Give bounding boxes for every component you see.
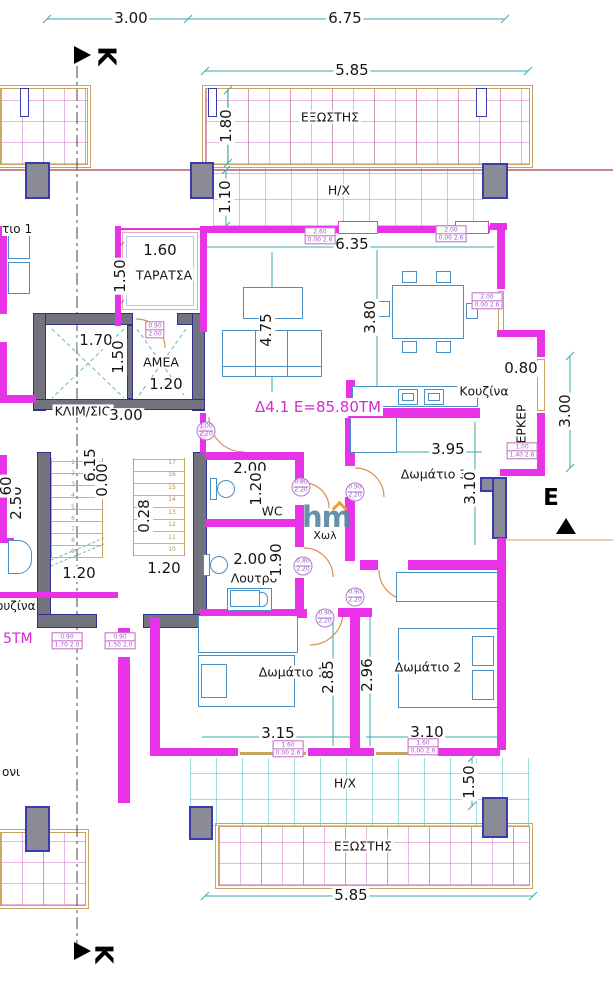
wall bbox=[205, 519, 304, 527]
wall bbox=[497, 223, 505, 289]
dimension: 2.96 bbox=[360, 656, 376, 693]
room-label-room3: Δωμάτιο 3 bbox=[399, 467, 470, 480]
room-label-klimsio: ΚΛΙΜ/ΣΙΟ bbox=[53, 404, 114, 417]
dimension: 1.50 bbox=[111, 338, 127, 375]
stair-step-numbers: 1716 1514 1312 1110 bbox=[166, 459, 178, 553]
dimension: 1.80 bbox=[219, 107, 235, 144]
dimension: 1.20 bbox=[60, 566, 97, 582]
wall bbox=[37, 614, 97, 628]
door-tag: 0.902.20 bbox=[346, 483, 365, 502]
chair bbox=[402, 341, 417, 353]
window bbox=[338, 221, 378, 234]
dimension: 6.35 bbox=[333, 237, 370, 253]
dimension: 1.10 bbox=[218, 178, 234, 215]
door-tag: 0.802.20 bbox=[292, 478, 311, 497]
dimension-fragment: 60 bbox=[0, 474, 15, 497]
door-tag: 0.902.20 bbox=[316, 609, 335, 628]
adjacent-furniture bbox=[8, 233, 30, 259]
room-label-room1: Δωμάτιο 1 bbox=[257, 665, 328, 678]
dimension: 1.50 bbox=[113, 257, 129, 294]
dimension: 0.80 bbox=[502, 361, 539, 377]
door-tag: 0.902.20 bbox=[346, 588, 365, 607]
wall bbox=[0, 226, 7, 314]
kitchen-sink bbox=[398, 389, 418, 405]
door-tag: 0.802.20 bbox=[294, 557, 313, 576]
window-tag: 0.902.00 bbox=[145, 321, 164, 338]
stair-step-numbers: 12 34 56 78 9 bbox=[68, 459, 78, 555]
window-tag: 2.000.00 2.6 bbox=[436, 225, 467, 242]
window-jamb bbox=[476, 88, 487, 117]
section-marker-top: Κ bbox=[93, 46, 122, 65]
dimension: 1.20 bbox=[249, 470, 265, 507]
wall bbox=[500, 469, 542, 476]
room-label-taratsa: ΤΑΡΑΤΣΑ bbox=[134, 268, 194, 281]
toilet-bowl bbox=[217, 480, 235, 498]
column bbox=[482, 797, 508, 838]
window-jamb bbox=[208, 88, 217, 117]
pillow bbox=[472, 636, 494, 666]
kitchen-sink bbox=[424, 389, 444, 405]
window-tag: 1.600.00 2.6 bbox=[408, 738, 439, 755]
room-label-kouzina: Κουζίνα bbox=[457, 384, 510, 397]
column bbox=[25, 162, 50, 199]
window-tag: 2.000.00 2.6 bbox=[472, 292, 503, 309]
dimension: 4.75 bbox=[259, 311, 275, 348]
apartment-label: Δ4.1 Ε=85.80ΤΜ bbox=[253, 398, 383, 416]
chair bbox=[436, 341, 451, 353]
dimension: 3.10 bbox=[463, 469, 479, 506]
wall bbox=[0, 342, 7, 400]
chair bbox=[436, 271, 451, 283]
dimension: 6.75 bbox=[326, 11, 363, 27]
wall bbox=[37, 452, 51, 628]
section-arrow-icon bbox=[556, 518, 576, 534]
wall bbox=[150, 617, 160, 750]
wardrobe bbox=[396, 572, 498, 602]
adjacent-balcony-label-fragment: ονι bbox=[2, 765, 20, 779]
window-tag: 2.600.00 2.6 bbox=[305, 227, 336, 244]
wall bbox=[308, 748, 374, 756]
column bbox=[482, 163, 508, 199]
wall bbox=[438, 748, 500, 756]
wall bbox=[537, 413, 545, 476]
room-label-exostis-bottom: ΕΞΩΣΤΗΣ bbox=[332, 839, 394, 852]
wall bbox=[127, 325, 133, 399]
toilet-bowl bbox=[210, 556, 228, 574]
wall bbox=[408, 560, 500, 570]
adjacent-kitchen-label-fragment: ουζίνα bbox=[0, 599, 36, 613]
dimension: 3.95 bbox=[429, 442, 466, 458]
dimension: 1.60 bbox=[141, 243, 178, 259]
room-label-amea: ΑΜΕΑ bbox=[141, 355, 181, 368]
wall bbox=[338, 608, 372, 617]
wall bbox=[193, 452, 207, 628]
window-tag: 0.901.50 2.0 bbox=[105, 632, 136, 649]
window-tag: 1.600.00 2.6 bbox=[273, 740, 304, 757]
room-label-hx-top: Η/Χ bbox=[326, 183, 352, 196]
section-arrow-icon bbox=[74, 46, 91, 64]
dimension: 5.85 bbox=[332, 888, 369, 904]
wall bbox=[537, 330, 545, 357]
column bbox=[189, 806, 213, 840]
adjacent-furniture bbox=[8, 262, 30, 294]
wall bbox=[118, 657, 130, 803]
dimension: 0.00 bbox=[95, 461, 111, 498]
dimension: 1.90 bbox=[269, 541, 285, 578]
dimension: 5.85 bbox=[333, 63, 370, 79]
section-marker-right: Ε bbox=[543, 485, 559, 511]
wall bbox=[200, 226, 207, 332]
dimension: 1.20 bbox=[147, 377, 184, 393]
room-label-room2: Δωμάτιο 2 bbox=[393, 660, 464, 673]
toilet-tank bbox=[203, 554, 210, 576]
adjacent-bathtub bbox=[8, 540, 32, 574]
room-label-erker: ΕΡΚΕΡ bbox=[514, 402, 527, 445]
desk bbox=[230, 590, 260, 607]
dimension: 1.20 bbox=[145, 561, 182, 577]
dimension: 3.80 bbox=[363, 298, 379, 335]
wall bbox=[0, 395, 36, 403]
adjacent-area-label-fragment: 5ΤΜ bbox=[3, 631, 33, 647]
dimension: 3.00 bbox=[107, 408, 144, 424]
window-tag: 0.901.70 2.0 bbox=[52, 632, 83, 649]
dimension: 0.28 bbox=[137, 497, 153, 534]
section-marker-bottom: Κ bbox=[90, 944, 119, 963]
wardrobe bbox=[198, 615, 298, 653]
door-tag: 1.002.20 bbox=[197, 422, 216, 441]
section-arrow-icon bbox=[74, 942, 91, 960]
chair bbox=[378, 301, 390, 317]
adjacent-room-label-fragment: τιο 1 bbox=[2, 222, 32, 236]
dimension: 1.50 bbox=[462, 763, 478, 800]
pillow bbox=[201, 664, 227, 698]
room-label-exostis-top: ΕΞΩΣΤΗΣ bbox=[299, 110, 361, 123]
chair bbox=[402, 271, 417, 283]
floor-plan-canvas: 1716 1514 1312 1110 12 34 56 78 9 bbox=[0, 0, 613, 1000]
wall bbox=[360, 560, 378, 570]
column bbox=[25, 806, 50, 852]
dimension: 2.85 bbox=[321, 658, 337, 695]
column bbox=[492, 477, 507, 539]
room-label-hx-bottom: Η/Χ bbox=[332, 776, 358, 789]
column bbox=[190, 162, 214, 199]
window-tag: 1.001.40 2.6 bbox=[507, 442, 538, 459]
toilet-tank bbox=[210, 478, 217, 500]
dimension: 2.00 bbox=[231, 552, 268, 568]
pillow bbox=[472, 670, 494, 700]
bed-single bbox=[350, 417, 397, 453]
dining-table bbox=[392, 285, 464, 339]
dimension: 3.00 bbox=[112, 11, 149, 27]
dimension: 3.00 bbox=[558, 392, 574, 429]
room-label-hall: Χωλ bbox=[311, 530, 338, 542]
wall bbox=[121, 228, 201, 230]
wall bbox=[0, 592, 118, 598]
wall bbox=[150, 748, 238, 756]
window-jamb bbox=[20, 88, 29, 117]
wall bbox=[295, 578, 304, 617]
